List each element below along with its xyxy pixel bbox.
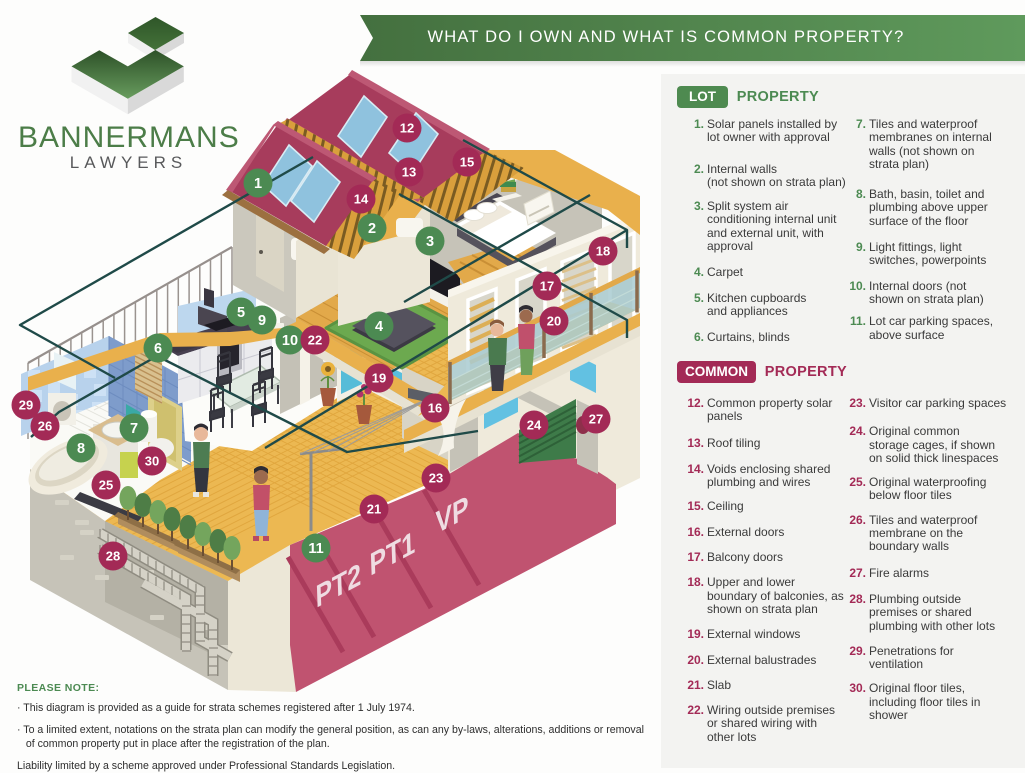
svg-text:22: 22 — [308, 333, 322, 348]
svg-text:2: 2 — [368, 221, 376, 237]
svg-text:1: 1 — [254, 176, 262, 192]
svg-text:23: 23 — [429, 471, 443, 486]
svg-text:3: 3 — [426, 234, 434, 250]
svg-text:19: 19 — [372, 371, 386, 386]
svg-text:13: 13 — [402, 165, 416, 180]
svg-text:4: 4 — [375, 319, 383, 335]
svg-text:20: 20 — [547, 314, 561, 329]
svg-text:28: 28 — [106, 549, 120, 564]
svg-text:11: 11 — [308, 541, 323, 557]
svg-text:6: 6 — [154, 341, 162, 357]
svg-text:7: 7 — [130, 421, 138, 437]
svg-text:27: 27 — [589, 412, 603, 427]
svg-text:14: 14 — [354, 192, 369, 207]
svg-text:25: 25 — [99, 478, 113, 493]
svg-text:16: 16 — [428, 401, 442, 416]
svg-text:5: 5 — [237, 305, 245, 321]
svg-text:29: 29 — [19, 398, 33, 413]
svg-text:9: 9 — [258, 313, 266, 329]
svg-text:26: 26 — [38, 419, 52, 434]
svg-text:17: 17 — [540, 279, 554, 294]
svg-text:8: 8 — [77, 441, 85, 457]
svg-text:12: 12 — [400, 121, 414, 136]
svg-text:24: 24 — [527, 418, 542, 433]
svg-text:10: 10 — [282, 333, 298, 349]
svg-text:18: 18 — [596, 244, 610, 259]
svg-text:21: 21 — [367, 502, 381, 517]
svg-text:30: 30 — [145, 454, 159, 469]
svg-text:15: 15 — [460, 155, 474, 170]
